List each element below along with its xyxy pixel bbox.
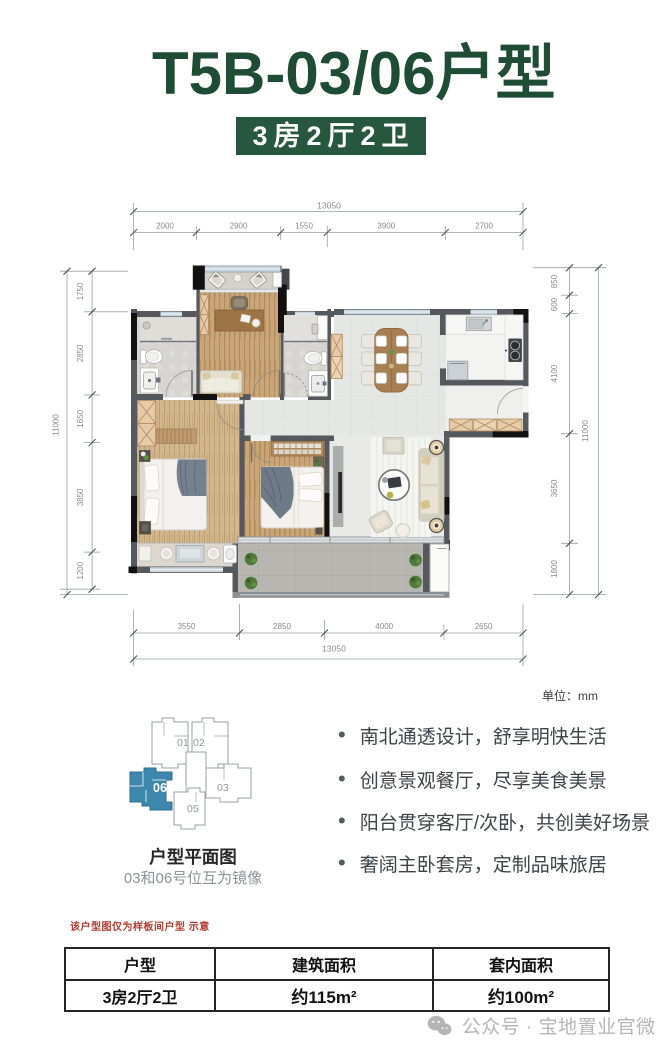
svg-text:05: 05 [187, 803, 199, 815]
svg-text:850: 850 [550, 274, 559, 288]
svg-text:2000: 2000 [156, 222, 174, 231]
svg-text:3900: 3900 [377, 222, 395, 231]
svg-text:2650: 2650 [475, 622, 493, 631]
svg-text:11000: 11000 [581, 420, 590, 442]
svg-text:1800: 1800 [550, 560, 559, 578]
svg-text:4000: 4000 [375, 622, 393, 631]
svg-text:06: 06 [153, 781, 167, 795]
svg-text:1750: 1750 [76, 282, 85, 300]
svg-text:1200: 1200 [76, 561, 85, 579]
svg-text:02: 02 [193, 737, 205, 749]
svg-text:3850: 3850 [76, 488, 85, 506]
svg-text:2850: 2850 [273, 622, 291, 631]
svg-text:2900: 2900 [230, 222, 248, 231]
svg-text:3650: 3650 [550, 479, 559, 497]
svg-text:2700: 2700 [475, 222, 493, 231]
svg-text:600: 600 [550, 297, 559, 311]
svg-text:03: 03 [217, 782, 229, 794]
svg-text:单位：mm: 单位：mm [542, 688, 598, 703]
svg-text:2850: 2850 [76, 344, 85, 362]
svg-text:13050: 13050 [317, 201, 341, 211]
svg-text:1550: 1550 [295, 222, 313, 231]
svg-text:3550: 3550 [178, 622, 196, 631]
svg-text:13050: 13050 [322, 644, 346, 654]
svg-text:01: 01 [177, 737, 189, 749]
svg-text:4100: 4100 [550, 364, 559, 382]
svg-text:1650: 1650 [76, 409, 85, 427]
svg-text:11000: 11000 [52, 414, 61, 436]
